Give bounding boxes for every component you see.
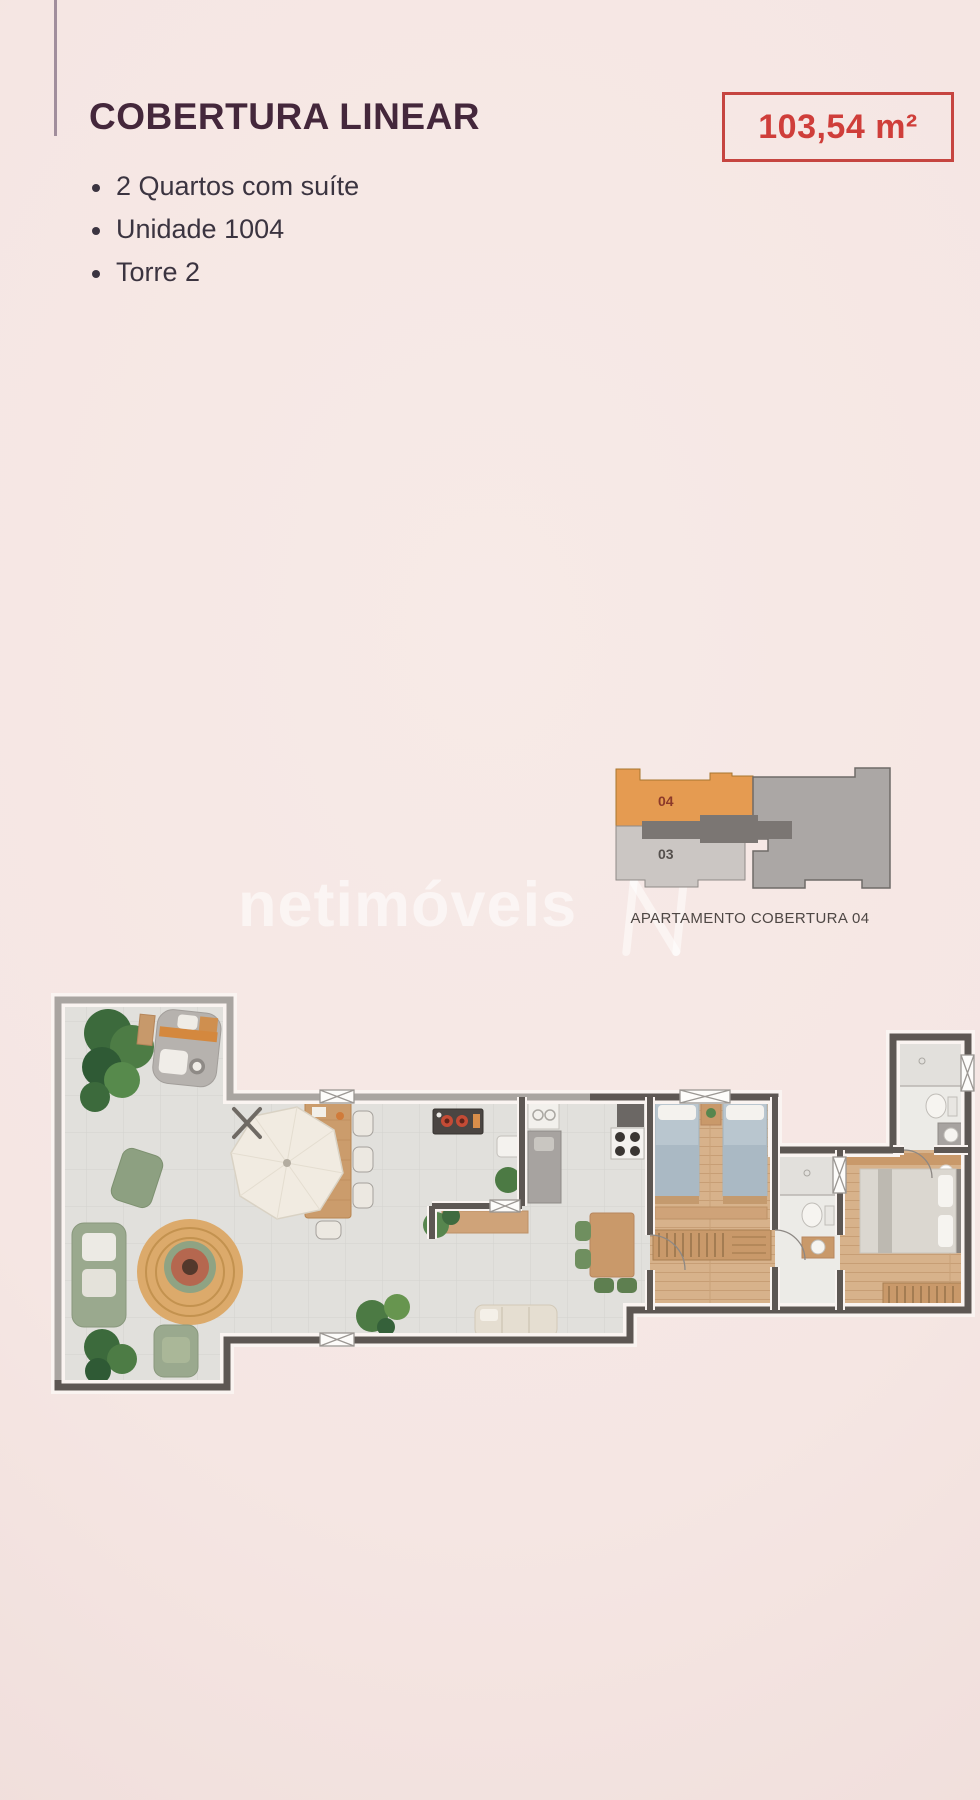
twin-bed-1 — [655, 1102, 699, 1204]
page-title: COBERTURA LINEAR — [89, 96, 480, 138]
bbq-grill — [433, 1109, 483, 1134]
twin-bed-2 — [723, 1102, 767, 1204]
tower-locator-diagram: 04 03 — [600, 755, 900, 900]
feature-item-unit: Unidade 1004 — [90, 215, 359, 244]
locator-unit-03-label: 03 — [658, 846, 674, 862]
floor-plan — [50, 985, 975, 1395]
window-suite-bathroom — [961, 1055, 974, 1091]
stove — [611, 1128, 644, 1159]
kitchen-cabinet — [617, 1101, 644, 1127]
nightstand — [701, 1101, 721, 1125]
living-sofa — [475, 1305, 557, 1337]
terrace-sofa — [72, 1223, 126, 1327]
suite-shower-area — [896, 1040, 965, 1086]
suite-toilet — [926, 1094, 957, 1118]
terrace-armchair — [154, 1325, 198, 1377]
feature-list: 2 Quartos com suíte Unidade 1004 Torre 2 — [90, 172, 359, 301]
bath-sink — [802, 1237, 834, 1258]
locator-unit-04-label: 04 — [658, 793, 674, 809]
area-badge: 103,54 m² — [722, 92, 954, 162]
locator-caption: APARTAMENTO COBERTURA 04 — [590, 910, 910, 927]
suite-bath-sink — [938, 1123, 965, 1147]
window-top — [320, 1090, 354, 1103]
shower-area — [778, 1153, 837, 1195]
watermark-text: netimóveis — [238, 869, 577, 941]
window-bathroom — [833, 1157, 846, 1193]
rattan-rug-firepit — [137, 1219, 243, 1325]
marketing-slide: COBERTURA LINEAR 103,54 m² 2 Quartos com… — [0, 0, 980, 1800]
window-bench-wall — [490, 1200, 520, 1212]
accent-line — [54, 0, 57, 136]
bed-bench — [655, 1207, 767, 1219]
window-bedroom2 — [680, 1090, 730, 1103]
suite-bed — [860, 1169, 964, 1253]
wardrobe — [653, 1230, 771, 1260]
window-bottom — [320, 1333, 354, 1346]
feature-item-tower: Torre 2 — [90, 258, 359, 287]
toilet — [802, 1203, 834, 1227]
feature-item-rooms: 2 Quartos com suíte — [90, 172, 359, 201]
area-badge-value: 103,54 m² — [758, 108, 918, 147]
